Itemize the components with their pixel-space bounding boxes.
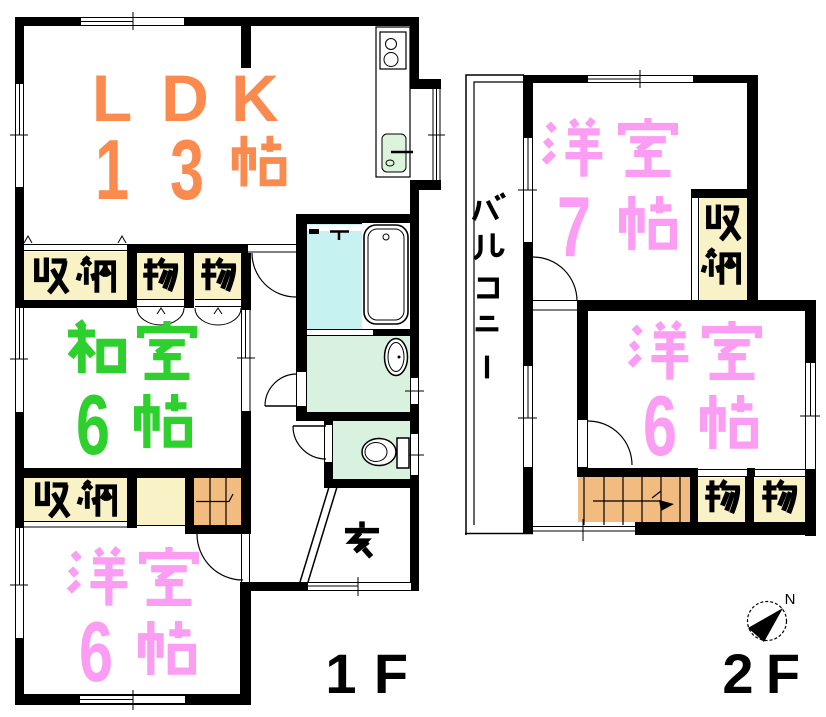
svg-text:6: 6	[643, 378, 677, 473]
svg-text:7: 7	[557, 179, 591, 274]
svg-text:K: K	[231, 61, 279, 135]
svg-text:F: F	[766, 642, 800, 705]
svg-text:6: 6	[76, 377, 110, 472]
svg-text:2: 2	[722, 642, 753, 705]
svg-text:N: N	[785, 591, 796, 608]
svg-text:6: 6	[79, 604, 113, 699]
svg-text:F: F	[374, 642, 408, 705]
svg-text:1: 1	[325, 642, 356, 705]
svg-text:1: 1	[95, 122, 129, 217]
svg-text:3: 3	[170, 122, 204, 217]
